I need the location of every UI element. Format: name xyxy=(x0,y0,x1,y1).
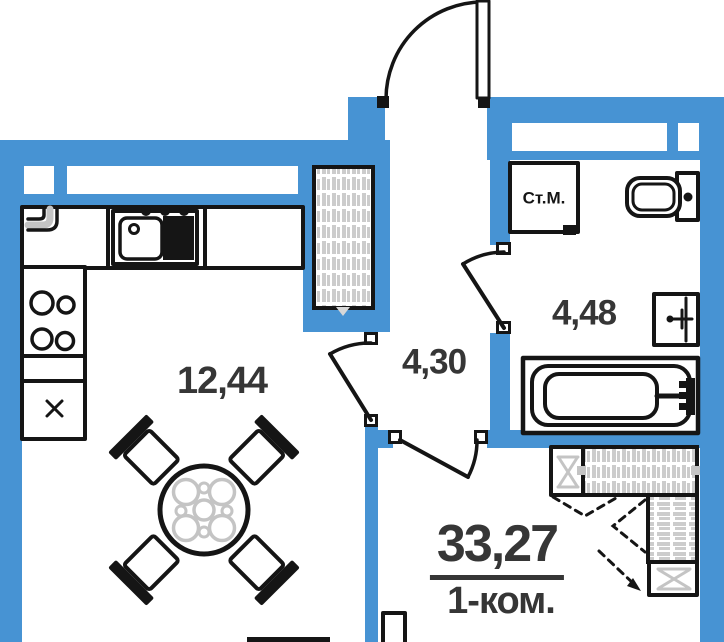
bathtub xyxy=(523,358,698,433)
washing-machine-foot xyxy=(563,225,576,235)
bathtub-knob-1 xyxy=(679,381,686,388)
bathroom-door-arc xyxy=(463,252,504,264)
kitchen-counter xyxy=(22,206,303,268)
bathtub-basin xyxy=(545,374,657,418)
room-door-arc xyxy=(468,440,477,477)
bathtub-knob-3 xyxy=(679,403,686,410)
room-wardrobe xyxy=(551,447,700,595)
bathroom-door xyxy=(463,252,504,328)
kitchen-door xyxy=(330,343,371,420)
wardrobe-door-dash-3 xyxy=(599,551,635,585)
wardrobe-door-dash-2 xyxy=(613,500,645,552)
entrance-door xyxy=(386,1,489,99)
wardrobe-nub-left xyxy=(577,466,586,475)
wardrobe-door-dash-1 xyxy=(553,497,616,516)
hall-wardrobe xyxy=(314,167,373,316)
wardrobe-nub-right xyxy=(691,466,700,475)
label-bath-area: 4,48 xyxy=(552,296,616,331)
sink-drain xyxy=(130,225,139,234)
dining-table xyxy=(160,466,248,554)
bottom-cut-box xyxy=(383,613,405,642)
hall-wardrobe-marker xyxy=(336,307,350,316)
bathroom-door-leaf xyxy=(463,264,504,328)
washing-machine-label: Ст.М. xyxy=(523,190,566,207)
label-apartment-type: 1-ком. xyxy=(447,582,555,620)
bottom-sill-bar xyxy=(247,637,330,642)
entrance-door-leaf xyxy=(477,1,489,98)
hall-wardrobe-hatch xyxy=(314,167,373,308)
bathtub-knob-2 xyxy=(679,392,686,399)
kitchen-door-arc xyxy=(330,343,371,354)
washbasin xyxy=(654,294,698,345)
stove-icon xyxy=(163,216,194,260)
table-top xyxy=(160,466,248,554)
washbasin-tap-knob xyxy=(667,316,674,323)
kitchen-door-leaf xyxy=(330,354,371,420)
bathtub-tap-bar xyxy=(686,378,695,415)
floor-plan: 12,44 4,30 4,48 Ст.М. 33,27 1-ком. xyxy=(0,0,724,642)
label-hall-area: 4,30 xyxy=(402,345,466,380)
tap-knob-3 xyxy=(179,206,189,216)
tap-knob-1 xyxy=(141,206,151,216)
kitchen-left-column xyxy=(22,267,85,439)
wardrobe-hanging-top xyxy=(583,447,697,495)
label-total-area: 33,27 xyxy=(430,518,564,580)
toilet-flush-button xyxy=(684,193,693,202)
room-door-leaf xyxy=(400,440,468,477)
cabinet-divider xyxy=(22,356,85,381)
tap-knob-2 xyxy=(160,206,170,216)
sink-stove-block xyxy=(113,206,197,264)
wardrobe-hanging-right xyxy=(648,495,697,562)
room-door xyxy=(400,440,477,477)
entrance-door-arc xyxy=(386,2,483,99)
toilet xyxy=(627,173,698,220)
kitchen-sink xyxy=(120,218,162,259)
label-total-area-value: 33,27 xyxy=(430,518,564,580)
label-kitchen-area: 12,44 xyxy=(177,362,267,400)
